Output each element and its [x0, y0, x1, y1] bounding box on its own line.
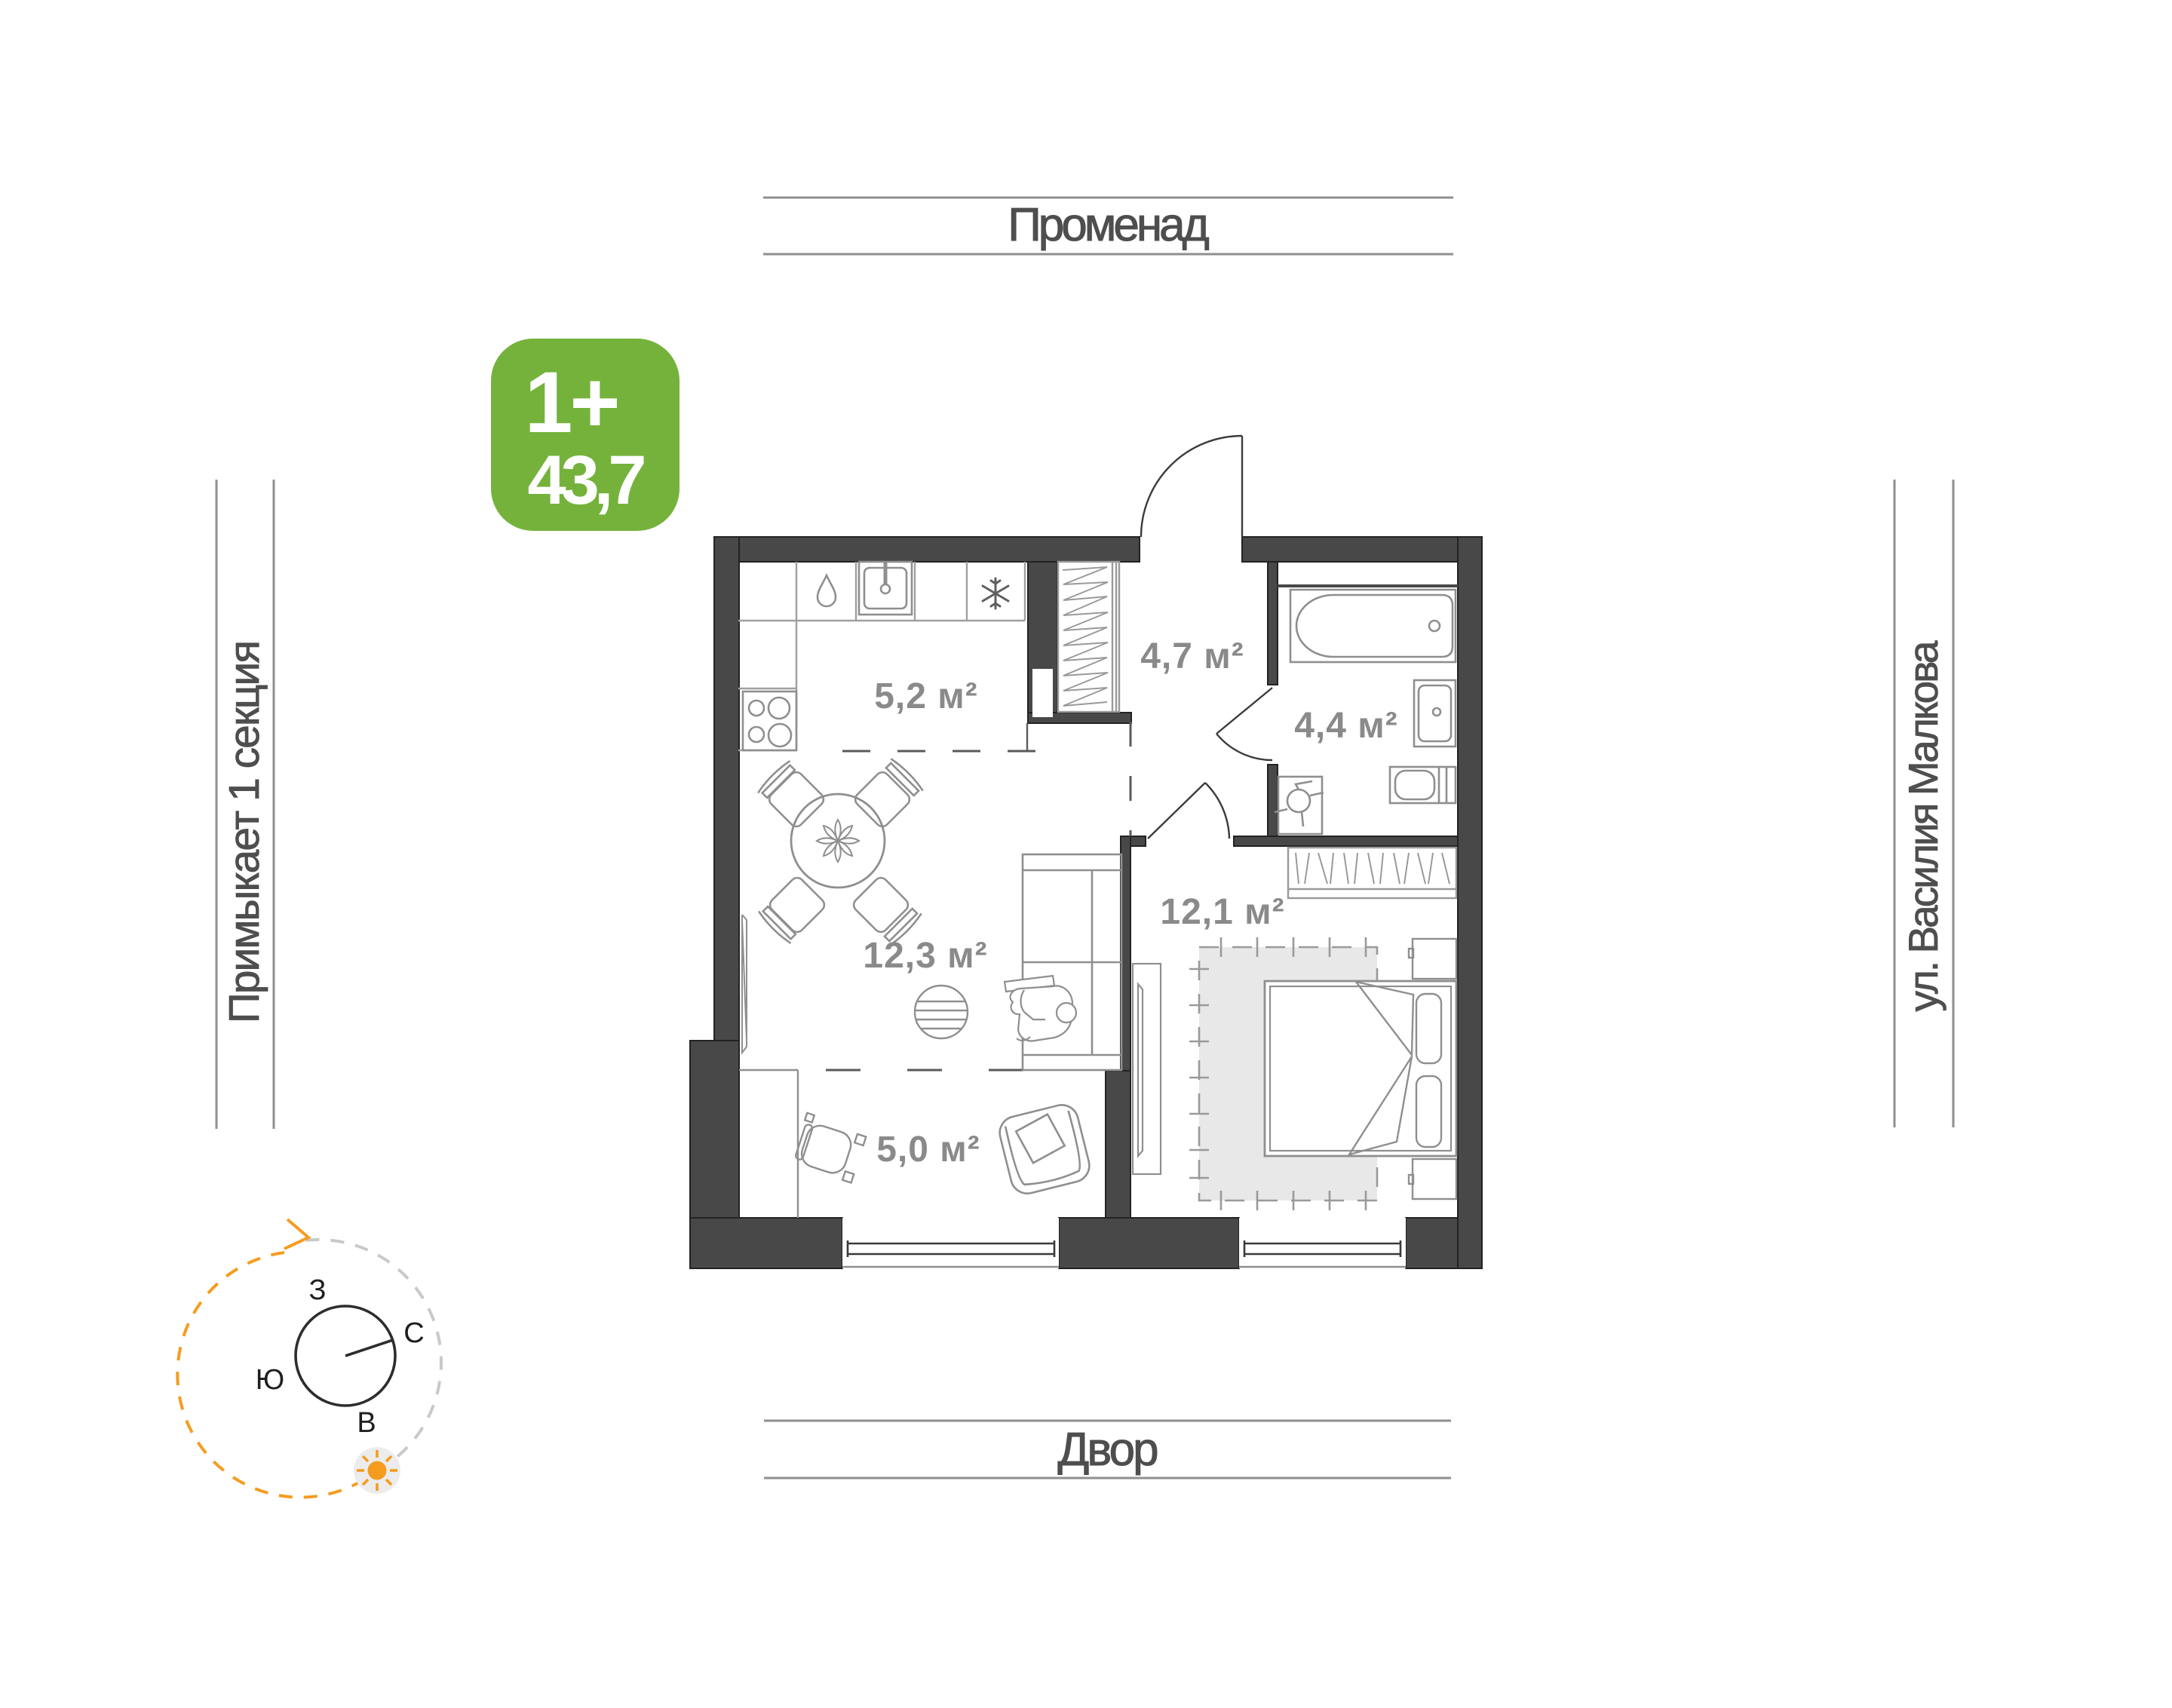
svg-text:Променад: Променад [1008, 199, 1209, 251]
svg-text:Двор: Двор [1057, 1424, 1157, 1476]
svg-text:5,2 м²: 5,2 м² [874, 676, 978, 716]
svg-text:С: С [403, 1317, 424, 1349]
svg-text:Примыкает 1 секция: Примыкает 1 секция [220, 642, 268, 1023]
svg-text:З: З [309, 1274, 327, 1306]
svg-text:1+: 1+ [524, 354, 617, 451]
svg-text:4,4 м²: 4,4 м² [1294, 706, 1398, 746]
svg-text:12,3 м²: 12,3 м² [863, 936, 987, 976]
svg-text:12,1 м²: 12,1 м² [1160, 892, 1284, 932]
svg-text:ул. Василия Малкова: ул. Василия Малкова [1900, 640, 1947, 1011]
svg-text:43,7: 43,7 [527, 442, 644, 519]
svg-text:В: В [357, 1407, 376, 1439]
svg-text:4,7 м²: 4,7 м² [1140, 636, 1244, 676]
svg-text:5,0 м²: 5,0 м² [876, 1130, 980, 1170]
svg-text:Ю: Ю [256, 1364, 284, 1396]
